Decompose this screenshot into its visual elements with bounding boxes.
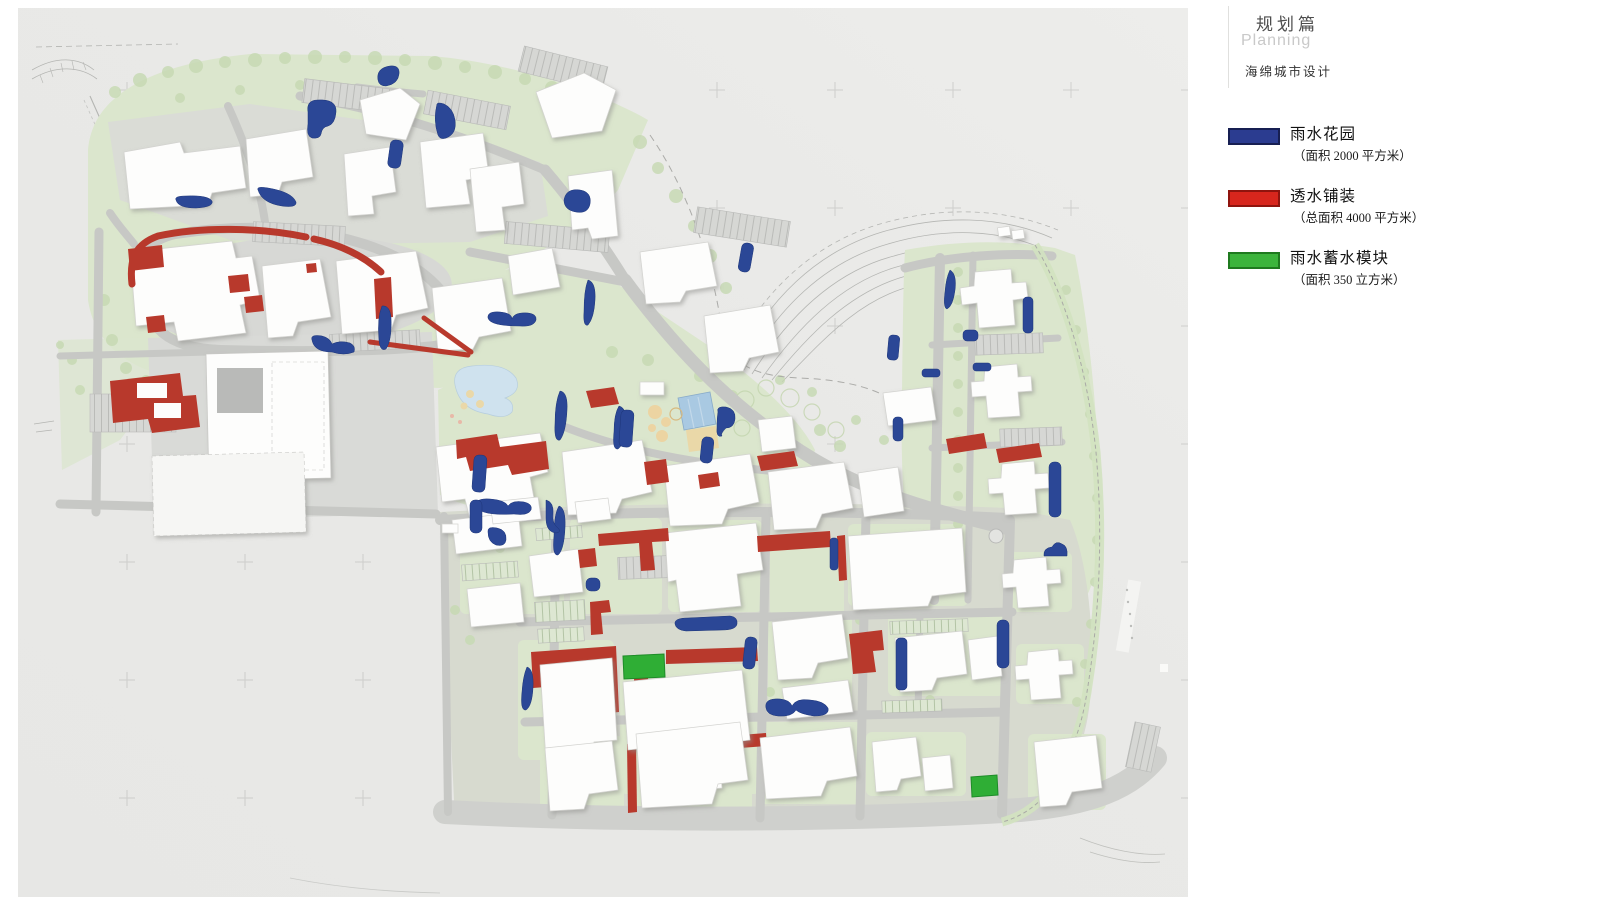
storage-module-swatch — [1228, 252, 1280, 269]
slide-page: 规划篇 Planning 海绵城市设计 雨水花园 （面积 2000 平方米） 透… — [0, 0, 1599, 910]
legend-label: 透水铺装 — [1290, 184, 1356, 206]
legend-detail: （总面积 4000 平方米） — [1293, 207, 1424, 226]
storage-module-2 — [971, 775, 998, 797]
legend-detail: （面积 350 立方米） — [1293, 269, 1406, 288]
legend-label: 雨水花园 — [1290, 122, 1356, 144]
site-plan-map — [0, 0, 1190, 910]
legend-label: 雨水蓄水模块 — [1290, 246, 1389, 268]
legend-row-storage-module: 雨水蓄水模块 （面积 350 立方米） — [1228, 246, 1588, 296]
legend-detail: （面积 2000 平方米） — [1293, 145, 1412, 164]
storage-module-1 — [623, 654, 665, 679]
header-divider — [1228, 6, 1229, 88]
side-panel: 规划篇 Planning 海绵城市设计 雨水花园 （面积 2000 平方米） 透… — [1190, 0, 1599, 910]
section-title-en: Planning — [1241, 32, 1311, 50]
page-subtitle: 海绵城市设计 — [1245, 61, 1332, 80]
legend-row-permeable-paving: 透水铺装 （总面积 4000 平方米） — [1228, 184, 1588, 234]
permeable-paving-swatch — [1228, 190, 1280, 207]
site-plan-figure — [0, 0, 1190, 910]
legend-row-rain-garden: 雨水花园 （面积 2000 平方米） — [1228, 122, 1588, 172]
rain-garden-swatch — [1228, 128, 1280, 145]
swimming-pool — [678, 392, 716, 430]
